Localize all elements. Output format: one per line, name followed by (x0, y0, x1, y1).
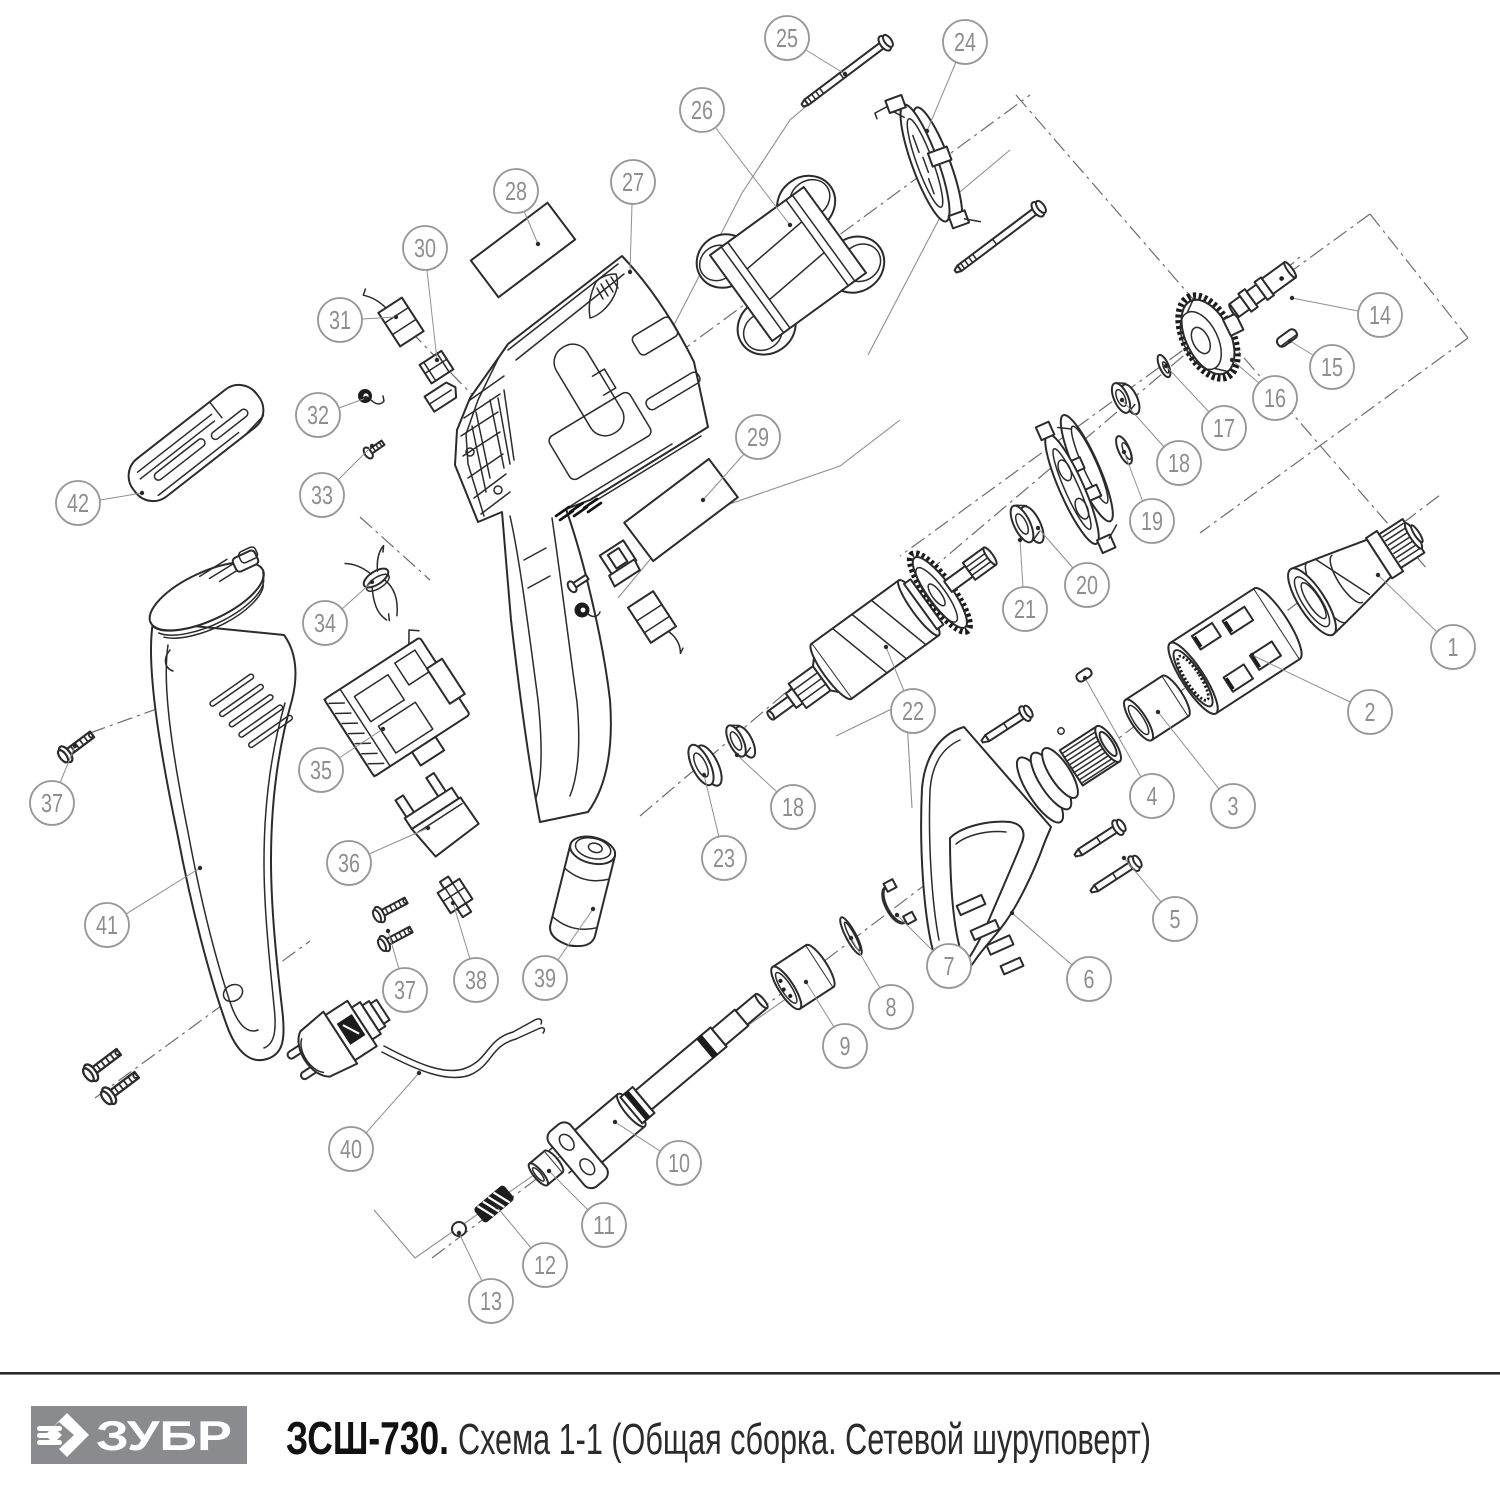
svg-text:33: 33 (311, 480, 333, 510)
svg-text:36: 36 (338, 848, 360, 878)
svg-text:26: 26 (691, 95, 713, 125)
svg-text:38: 38 (465, 965, 487, 995)
svg-text:12: 12 (534, 1250, 556, 1280)
svg-text:37: 37 (41, 788, 63, 818)
svg-text:Схема 1-1 (Общая сборка. Сетев: Схема 1-1 (Общая сборка. Сетевой шурупов… (458, 1415, 1151, 1464)
svg-text:2: 2 (1365, 697, 1376, 727)
svg-text:9: 9 (840, 1031, 851, 1061)
svg-text:11: 11 (593, 1210, 615, 1240)
svg-text:14: 14 (1369, 300, 1391, 330)
svg-text:17: 17 (1213, 413, 1235, 443)
svg-text:4: 4 (1147, 781, 1158, 811)
svg-text:39: 39 (534, 963, 556, 993)
svg-text:5: 5 (1170, 904, 1181, 934)
svg-text:29: 29 (747, 422, 769, 452)
svg-text:13: 13 (480, 1286, 502, 1316)
svg-text:18: 18 (782, 792, 804, 822)
svg-text:21: 21 (1014, 594, 1036, 624)
svg-text:ЗСШ-730.: ЗСШ-730. (286, 1412, 449, 1464)
svg-text:6: 6 (1084, 964, 1095, 994)
svg-text:10: 10 (668, 1148, 690, 1178)
svg-text:15: 15 (1321, 352, 1343, 382)
svg-text:34: 34 (314, 608, 336, 638)
svg-text:32: 32 (307, 400, 329, 430)
svg-text:40: 40 (340, 1134, 362, 1164)
svg-text:24: 24 (954, 27, 976, 57)
svg-text:18: 18 (1168, 448, 1190, 478)
svg-text:20: 20 (1076, 570, 1098, 600)
svg-text:23: 23 (713, 843, 735, 873)
svg-text:22: 22 (902, 696, 924, 726)
svg-text:7: 7 (944, 951, 955, 981)
svg-text:35: 35 (310, 755, 332, 785)
svg-text:41: 41 (96, 910, 118, 940)
svg-text:ЗУБР: ЗУБР (96, 1412, 232, 1459)
svg-text:16: 16 (1264, 383, 1286, 413)
svg-text:28: 28 (505, 176, 527, 206)
svg-text:42: 42 (67, 488, 89, 518)
svg-text:8: 8 (886, 992, 897, 1022)
svg-text:1: 1 (1448, 632, 1459, 662)
svg-text:37: 37 (394, 975, 416, 1005)
svg-text:27: 27 (622, 167, 644, 197)
svg-text:3: 3 (1228, 791, 1239, 821)
svg-text:25: 25 (776, 23, 798, 53)
svg-text:31: 31 (329, 305, 351, 335)
svg-text:30: 30 (414, 233, 436, 263)
svg-text:19: 19 (1141, 506, 1163, 536)
